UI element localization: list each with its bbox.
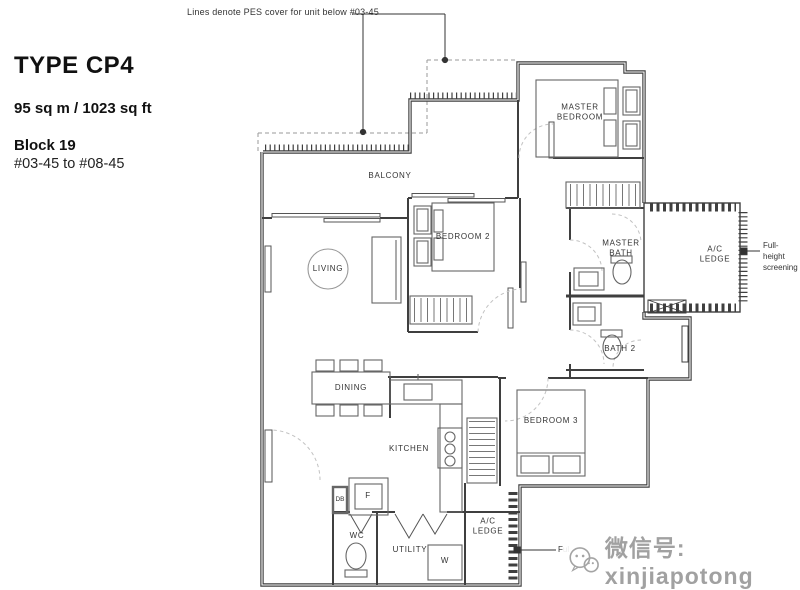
- pes-note-leader-lines: [352, 14, 448, 135]
- sofa: [372, 237, 401, 303]
- pes-cover-dashed-lines: [258, 60, 516, 152]
- furniture: [308, 80, 640, 580]
- master-bath-fixtures: [574, 256, 632, 290]
- plan-area: 95 sq m / 1023 sq ft: [14, 100, 152, 117]
- room-label-ac-ledge-right: A/C LEDGE: [700, 245, 731, 266]
- door-leaf: [549, 122, 554, 158]
- room-label-bedroom3: BEDROOM 3: [524, 416, 578, 426]
- balcony-sliding-door: [272, 214, 380, 218]
- floorplan-drawing: [0, 0, 800, 590]
- room-label-balcony: BALCONY: [368, 171, 411, 181]
- door-leaf: [508, 288, 513, 328]
- utility-bifold-door: [395, 514, 423, 538]
- living-window: [265, 246, 271, 292]
- room-label-wc: WC: [350, 531, 365, 541]
- bedroom2-furniture: [410, 203, 494, 324]
- washer-label: W: [441, 556, 449, 566]
- room-label-kitchen: KITCHEN: [389, 444, 429, 454]
- room-label-master-bedroom: MASTER BEDROOM: [557, 103, 603, 124]
- floorplan-page: TYPE CP4 95 sq m / 1023 sq ft Block 19 #…: [0, 0, 800, 590]
- room-label-ac-ledge-bottom: A/C LEDGE: [473, 517, 504, 538]
- room-label-dining: DINING: [335, 383, 367, 393]
- plan-unit-range: #03-45 to #08-45: [14, 156, 124, 172]
- door-leaf: [521, 262, 526, 302]
- plan-title: TYPE CP4: [14, 52, 134, 80]
- wechat-icon: [567, 540, 601, 580]
- windows-and-door-leaves: [265, 122, 554, 538]
- screening-leaders: [514, 248, 760, 553]
- db-label: DB: [335, 496, 344, 504]
- room-label-utility: UTILITY: [393, 545, 428, 555]
- watermark-text: 微信号: xinjiapotong: [605, 529, 796, 590]
- entrance-door-leaf: [265, 430, 272, 482]
- room-label-bath2: BATH 2: [604, 344, 636, 354]
- bedroom2-window: [412, 194, 474, 198]
- room-label-living: LIVING: [313, 264, 343, 274]
- ac-ledge-right-outline: [644, 203, 740, 362]
- fridge-label: F: [365, 491, 371, 501]
- door-swing-arcs: [272, 124, 641, 480]
- master-bedroom-furniture: [536, 80, 640, 208]
- pes-note: Lines denote PES cover for unit below #0…: [187, 7, 379, 17]
- room-label-bedroom2: BEDROOM 2: [436, 232, 490, 242]
- bedroom3-furniture: [467, 390, 585, 483]
- room-label-master-bath: MASTER BATH: [602, 239, 640, 260]
- full-height-screening-label-right: Full-height screening: [763, 241, 800, 273]
- plan-block: Block 19: [14, 137, 76, 154]
- hatch-marks: [265, 96, 743, 582]
- watermark: 微信号: xinjiapotong: [563, 527, 800, 590]
